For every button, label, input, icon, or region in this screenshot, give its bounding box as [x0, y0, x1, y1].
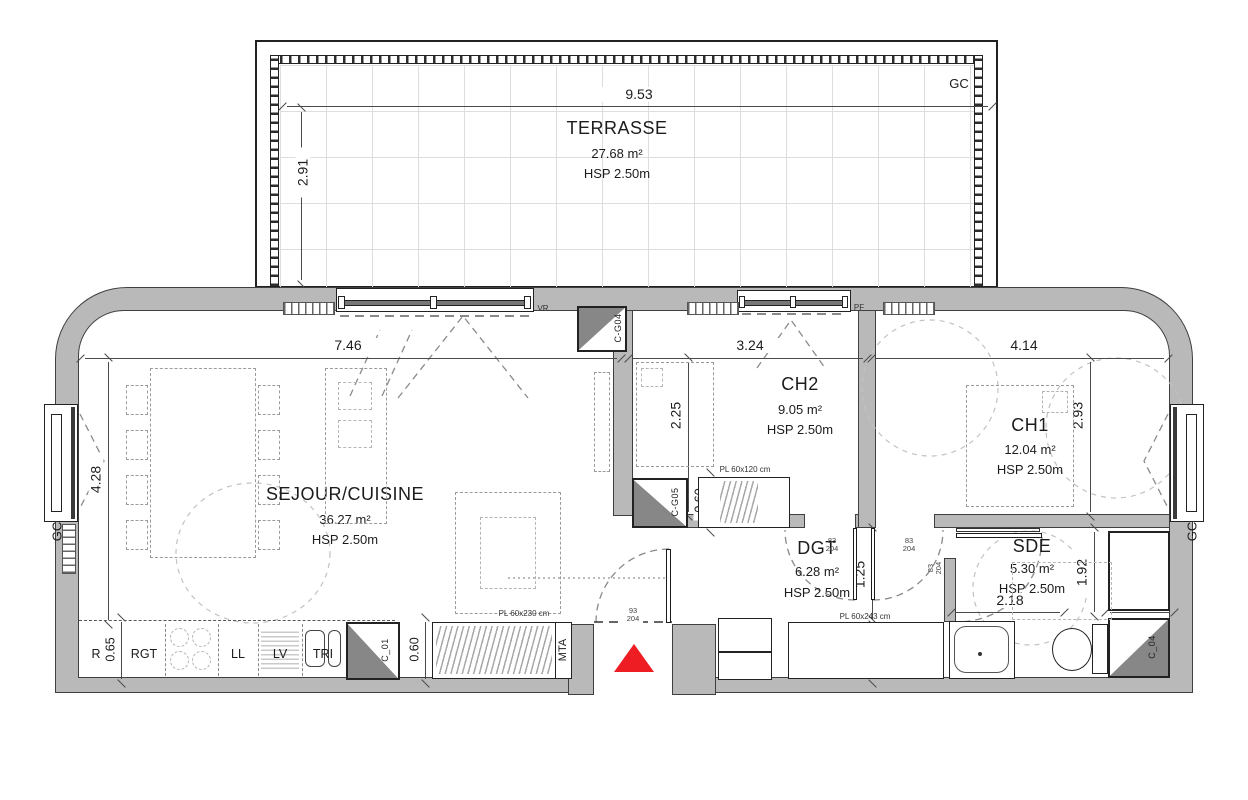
ch2-door-size: 83 204 [822, 537, 842, 553]
dim-ch1-width: 4.14 [990, 338, 1058, 353]
mta-label: MTA [557, 628, 569, 672]
right-window-slot [1186, 414, 1197, 512]
radiator-sejour [283, 302, 335, 315]
radiator-ch1 [883, 302, 935, 315]
dim-line-ch1-width [876, 358, 1164, 359]
dim-ch2-width: 3.24 [718, 338, 782, 353]
dgt-closet [788, 622, 944, 679]
ch2-window-mullion-right [842, 296, 848, 308]
kitchen-island-hob [338, 420, 372, 448]
entry-arrow [614, 644, 654, 672]
terrace-width-dim-line [287, 106, 988, 107]
kitchen-divider [218, 624, 219, 676]
wall-ch1-sde [934, 514, 1170, 528]
ch2-area: 9.05 m² [740, 402, 860, 417]
dining-table [150, 368, 256, 558]
duct-cg04-label: C-G04 [613, 308, 623, 348]
ch2-name: CH2 [740, 374, 860, 395]
kitchen-dishwasher-label: LV [262, 647, 298, 661]
ch2-closet-hatch [720, 481, 758, 523]
entry-closet-hatch [436, 626, 552, 674]
dim-sejour-width: 7.46 [316, 338, 380, 353]
right-wall-gc-label: GC [1185, 514, 1200, 550]
terrace-railing-top [270, 55, 983, 64]
dim-sejour-height: 4.28 [89, 456, 104, 504]
toilet-bowl [1052, 628, 1092, 671]
sde-door-size: 83 204 [927, 558, 943, 578]
terrace-hsp: HSP 2.50m [477, 166, 757, 181]
terrace-gc-label: GC [944, 76, 974, 91]
kitchen-island-sink [338, 382, 372, 410]
ch2-closet-label: PL 60x120 cm [690, 465, 800, 474]
ch2-window-mullion-left [739, 296, 745, 308]
dining-chair [258, 385, 280, 415]
entry-door-size: 93 204 [623, 607, 643, 623]
radiator-left-wall [62, 524, 76, 574]
terrace-railing-right [974, 55, 983, 287]
dining-chair [258, 520, 280, 550]
dim-line-sejour-width [85, 358, 617, 359]
bathtub-inner [954, 626, 1009, 673]
duct-cg05-label: C-G05 [670, 482, 680, 522]
bay-window-mullion-right [524, 296, 531, 309]
entry-closet-label: PL 60x230 cm [464, 609, 584, 618]
entry-alcove-wall-right [672, 624, 716, 695]
kitchen-washer-label: LL [222, 647, 254, 661]
sde-name: SDE [977, 536, 1087, 557]
door-height: 204 [899, 545, 919, 553]
kitchen-fridge-label: R [84, 647, 108, 661]
bay-window-mullion-left [338, 296, 345, 309]
square-table-inner [480, 517, 536, 589]
dim-line-ch1-height [1090, 362, 1091, 512]
shower-dashed-zone [1012, 562, 1112, 620]
towel-radiator [956, 528, 1040, 532]
dgt-closet-label: PL 60x243 cm [800, 612, 930, 621]
hob-burner [192, 651, 211, 670]
door-height: 204 [935, 558, 943, 578]
ch2-window-pf-label: PF [852, 303, 866, 312]
entry-door-leaf [666, 549, 671, 623]
sde-door-leaf [956, 533, 1042, 538]
electrical-panel [718, 618, 772, 652]
electrical-cabinet [718, 652, 772, 680]
hob-burner [192, 628, 211, 647]
kitchen-divider [302, 624, 303, 676]
ch2-hsp: HSP 2.50m [740, 422, 860, 437]
dim-entry-closet: 0.60 [409, 630, 422, 670]
dining-chair [126, 385, 148, 415]
toilet-tank [1092, 624, 1108, 674]
bathtub-drain [978, 652, 982, 656]
dining-chair [258, 430, 280, 460]
ch1-door-leaf [871, 528, 875, 600]
ch1-pillow [1042, 391, 1068, 413]
kitchen-sink-label: TRI [304, 647, 342, 661]
left-window-leaf [71, 407, 75, 519]
ch2-window-mullion-center [790, 296, 796, 308]
dining-chair [126, 475, 148, 505]
wall-ch2-ch1 [858, 310, 876, 528]
duct-c04 [1108, 618, 1170, 678]
terrace-name: TERRASSE [477, 118, 757, 139]
duct-c04-label: C_04 [1147, 627, 1157, 667]
bay-window-vr-label: VR [536, 304, 550, 313]
dim-line-sejour-height [108, 362, 109, 620]
dim-line-sde-closet [1110, 612, 1170, 613]
radiator-ch2 [687, 302, 739, 315]
sejour-wall-radiator [594, 372, 610, 472]
hob-burner [170, 651, 189, 670]
left-window-slot [51, 414, 62, 512]
sde-closet [1108, 531, 1170, 611]
dim-line-ch2-width [633, 358, 863, 359]
kitchen-divider [258, 624, 259, 676]
dining-chair [126, 430, 148, 460]
dim-line-entry-closet [425, 622, 426, 679]
terrace-width-dim: 9.53 [597, 87, 681, 102]
ch2-pillow [641, 368, 663, 387]
dining-chair [126, 520, 148, 550]
ch2-door-leaf [853, 528, 857, 600]
dining-chair [258, 475, 280, 505]
kitchen-storage-label: RGT [124, 647, 164, 661]
ch1-door-size: 83 204 [899, 537, 919, 553]
bay-window-mullion-center [430, 296, 437, 309]
terrace-depth-dim: 2.91 [296, 148, 311, 198]
floor-plan: GC TERRASSE 27.68 m² HSP 2.50m 9.53 2.91 [0, 0, 1248, 800]
terrace-railing-left [270, 55, 279, 287]
door-height: 204 [822, 545, 842, 553]
door-height: 204 [623, 615, 643, 623]
right-window-leaf [1173, 407, 1177, 519]
kitchen-divider [165, 624, 166, 676]
terrace-area: 27.68 m² [477, 146, 757, 161]
hob-burner [170, 628, 189, 647]
